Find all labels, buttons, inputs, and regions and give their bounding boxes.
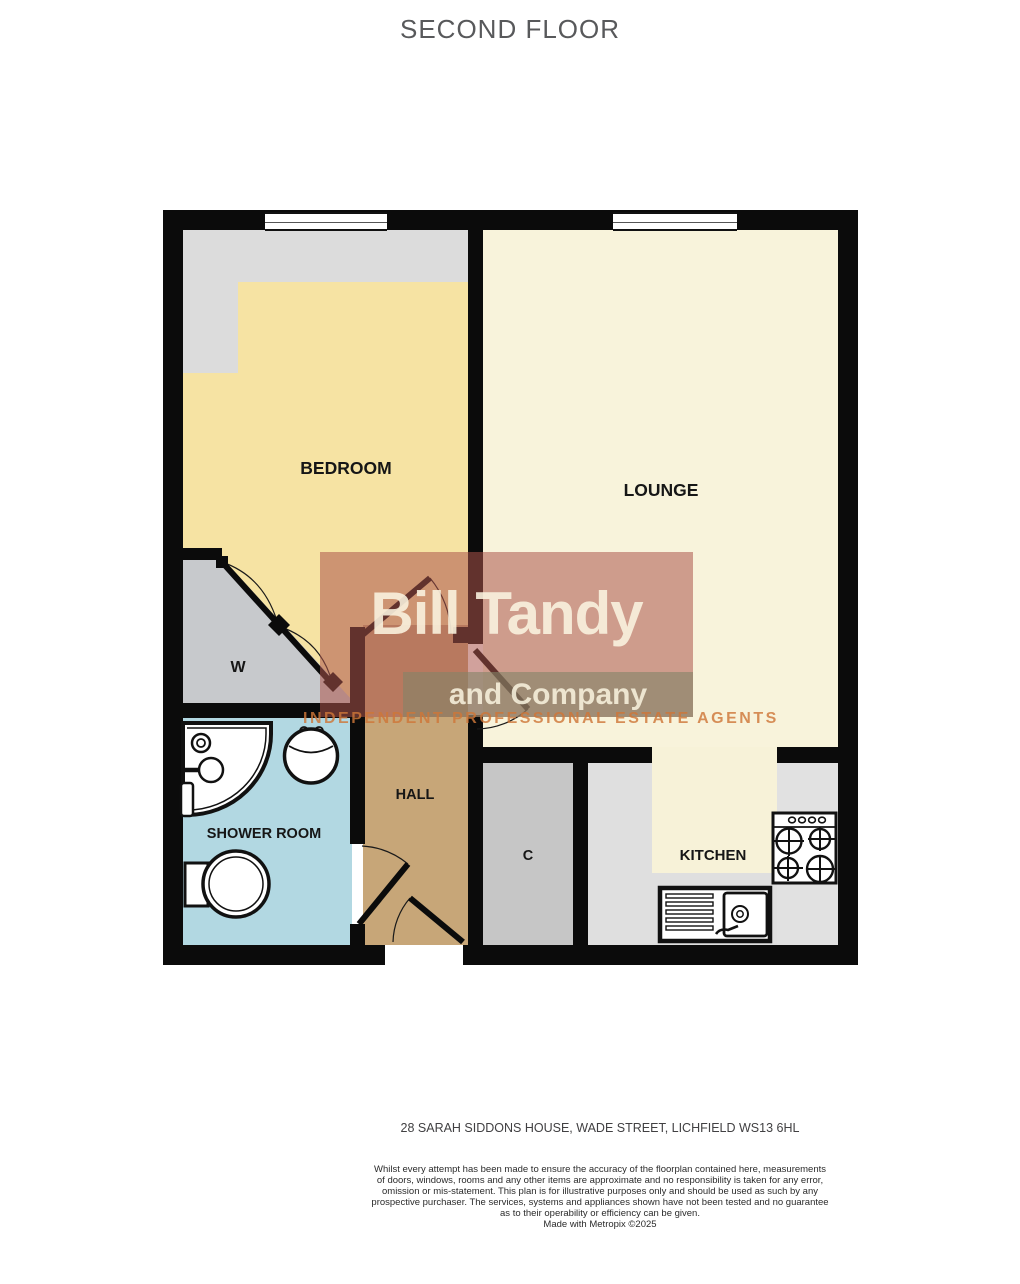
- lounge-door: [475, 650, 528, 729]
- wardrobe-label: W: [208, 659, 268, 677]
- shower-room-label: SHOWER ROOM: [199, 826, 329, 842]
- sink-and-drainer: [660, 888, 770, 941]
- cupboard-label: C: [498, 848, 558, 864]
- page-title: SECOND FLOOR: [0, 14, 1020, 45]
- corner-shower: [181, 723, 271, 816]
- gas-hob: [773, 813, 836, 883]
- kitchen-label: KITCHEN: [653, 847, 773, 864]
- entrance-door: [393, 898, 463, 942]
- disclaimer-line: Whilst every attempt has been made to en…: [180, 1164, 1020, 1175]
- disclaimer: Whilst every attempt has been made to en…: [180, 1164, 1020, 1230]
- lounge-label: LOUNGE: [581, 480, 741, 501]
- bedroom-door: [360, 578, 451, 637]
- disclaimer-line: of doors, windows, rooms and any other i…: [180, 1175, 1020, 1186]
- disclaimer-line: as to their operability or efficiency ca…: [180, 1208, 1020, 1219]
- bedroom-label: BEDROOM: [266, 458, 426, 479]
- disclaimer-line: prospective purchaser. The services, sys…: [180, 1197, 1020, 1208]
- toilet: [185, 851, 269, 917]
- disclaimer-line: omission or mis-statement. This plan is …: [180, 1186, 1020, 1197]
- floorplan-canvas: Bill Tandy and Company INDEPENDENT PROFE…: [163, 210, 858, 965]
- metropix-credit: Made with Metropix ©2025: [180, 1219, 1020, 1230]
- property-address: 28 SARAH SIDDONS HOUSE, WADE STREET, LIC…: [180, 1121, 1020, 1135]
- wash-basin: [285, 727, 338, 783]
- hall-label: HALL: [375, 787, 455, 803]
